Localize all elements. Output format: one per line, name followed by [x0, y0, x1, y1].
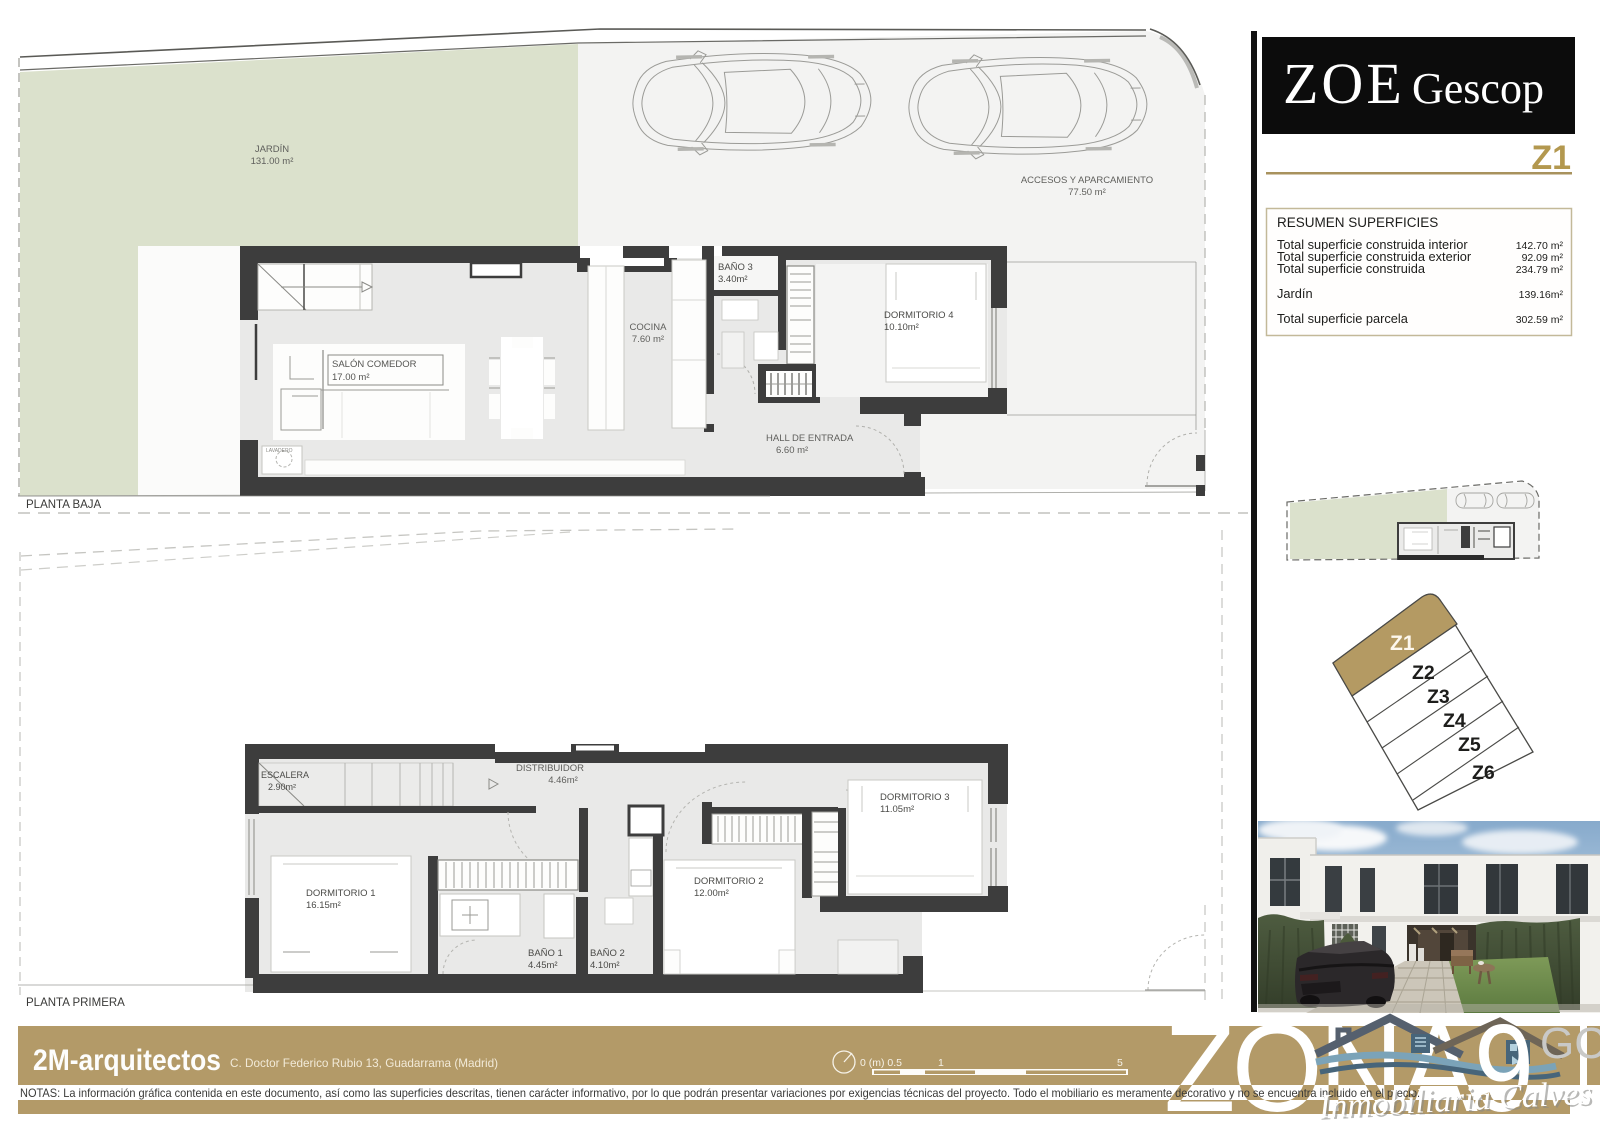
svg-text:Total superficie construida: Total superficie construida: [1277, 261, 1426, 276]
svg-text:Gescop: Gescop: [1412, 64, 1544, 113]
svg-text:142.70 m²: 142.70 m²: [1516, 240, 1564, 252]
svg-text:12.00m²: 12.00m²: [694, 888, 729, 899]
svg-text:SALÓN COMEDOR: SALÓN COMEDOR: [332, 359, 417, 370]
svg-text:302.59 m²: 302.59 m²: [1516, 314, 1564, 326]
svg-text:Total superficie parcela: Total superficie parcela: [1277, 311, 1409, 326]
svg-text:1: 1: [938, 1057, 944, 1069]
svg-text:COCINA: COCINA: [630, 322, 668, 333]
svg-text:BAÑO 1: BAÑO 1: [528, 948, 563, 959]
svg-text:16.15m²: 16.15m²: [306, 900, 341, 911]
svg-text:GC: GC: [1540, 1019, 1600, 1068]
svg-text:DORMITORIO 2: DORMITORIO 2: [694, 876, 764, 887]
svg-text:4.10m²: 4.10m²: [590, 960, 620, 971]
svg-text:2M-arquitectos: 2M-arquitectos: [33, 1044, 221, 1077]
svg-text:131.00 m²: 131.00 m²: [251, 156, 294, 167]
svg-text:Z1: Z1: [1531, 139, 1571, 177]
svg-text:Jardín: Jardín: [1277, 286, 1313, 301]
svg-text:234.79 m²: 234.79 m²: [1516, 264, 1564, 276]
svg-text:0 (m) 0.5: 0 (m) 0.5: [860, 1057, 902, 1069]
svg-text:JARDÍN: JARDÍN: [255, 144, 289, 155]
svg-text:4.45m²: 4.45m²: [528, 960, 558, 971]
svg-text:17.00 m²: 17.00 m²: [332, 372, 370, 383]
svg-text:DORMITORIO 4: DORMITORIO 4: [884, 310, 954, 321]
svg-text:Z3: Z3: [1427, 686, 1450, 708]
svg-text:6.60 m²: 6.60 m²: [776, 445, 808, 456]
svg-text:7.60 m²: 7.60 m²: [632, 334, 664, 345]
svg-text:5: 5: [1117, 1057, 1123, 1069]
svg-text:C. Doctor Federico Rubio 13, G: C. Doctor Federico Rubio 13, Guadarrama …: [230, 1056, 498, 1070]
svg-text:BAÑO 2: BAÑO 2: [590, 948, 625, 959]
svg-text:HALL DE ENTRADA: HALL DE ENTRADA: [766, 433, 854, 444]
svg-text:10.10m²: 10.10m²: [884, 322, 919, 333]
svg-text:ESCALERA: ESCALERA: [261, 770, 309, 780]
svg-text:BAÑO 3: BAÑO 3: [718, 262, 753, 273]
svg-text:PLANTA BAJA: PLANTA BAJA: [26, 499, 102, 511]
svg-text:DORMITORIO 3: DORMITORIO 3: [880, 792, 950, 803]
svg-text:11.05m²: 11.05m²: [880, 804, 914, 815]
svg-text:Z4: Z4: [1443, 710, 1466, 732]
svg-text:77.50 m²: 77.50 m²: [1068, 187, 1106, 198]
svg-text:139.16m²: 139.16m²: [1519, 289, 1564, 301]
svg-text:4.46m²: 4.46m²: [548, 775, 578, 786]
svg-text:RESUMEN SUPERFICIES: RESUMEN SUPERFICIES: [1277, 215, 1438, 230]
svg-text:Z5: Z5: [1458, 734, 1481, 756]
svg-text:92.09 m²: 92.09 m²: [1522, 252, 1564, 264]
svg-text:NOTAS: La información gráfica: NOTAS: La información gráfica contenida …: [20, 1086, 1420, 1100]
svg-text:3.40m²: 3.40m²: [718, 274, 748, 285]
svg-text:PLANTA PRIMERA: PLANTA PRIMERA: [26, 997, 125, 1009]
svg-text:ZOE: ZOE: [1283, 51, 1405, 116]
svg-text:2.90m²: 2.90m²: [268, 782, 296, 792]
svg-text:Z6: Z6: [1472, 762, 1495, 784]
svg-text:DISTRIBUIDOR: DISTRIBUIDOR: [516, 763, 584, 774]
svg-text:ACCESOS Y APARCAMIENTO: ACCESOS Y APARCAMIENTO: [1021, 175, 1153, 186]
svg-text:Z2: Z2: [1412, 662, 1435, 684]
svg-text:LAVADERO: LAVADERO: [266, 448, 293, 454]
svg-text:DORMITORIO 1: DORMITORIO 1: [306, 888, 376, 899]
svg-text:Z1: Z1: [1390, 632, 1415, 655]
